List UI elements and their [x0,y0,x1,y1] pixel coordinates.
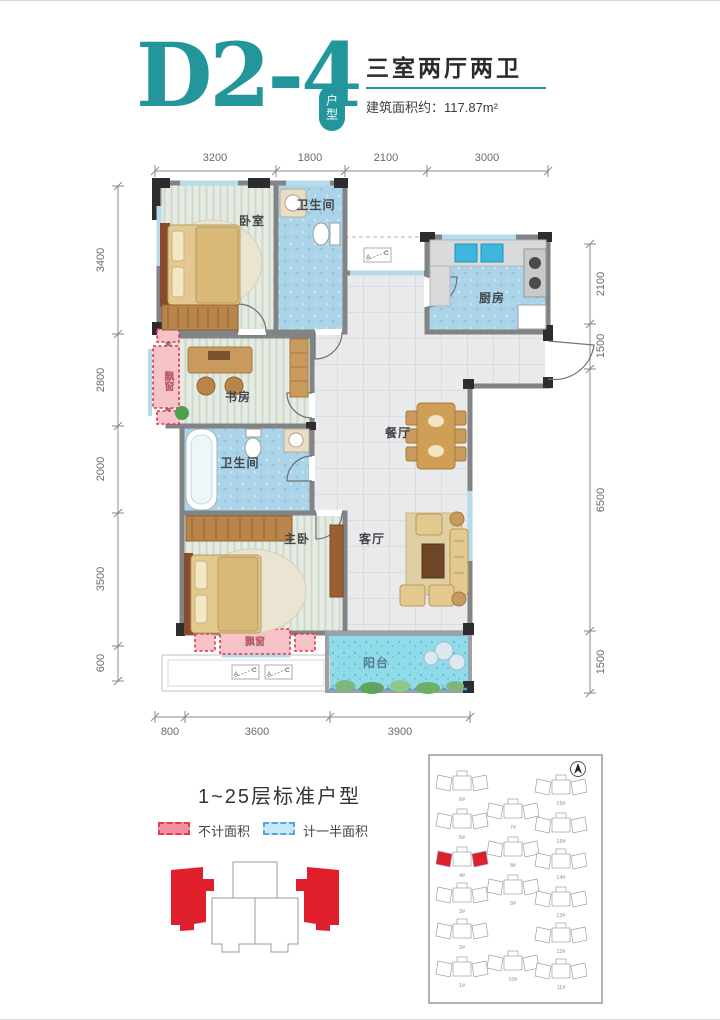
svg-text:3#: 3# [459,909,466,915]
dim-bottom-1: 800 [161,726,179,738]
svg-text:2#: 2# [459,945,466,951]
footprint-unit-highlight-right [296,867,339,931]
dim-left-1: 3400 [95,248,107,272]
unit-type-badge: 户型 [319,85,345,131]
label-living: 客厅 [358,531,385,546]
dim-top-2: 1800 [298,152,322,164]
svg-text:9#: 9# [510,901,517,907]
dim-left-2: 2800 [95,368,107,392]
closet-icon [162,305,238,330]
label-study: 书房 [225,389,251,404]
dim-top-4: 3000 [475,152,499,164]
bay-bottom-label: 飘窗 [245,635,265,648]
dim-bottom-2: 3600 [245,726,269,738]
area-text: 建筑面积约：117.87m² [366,97,498,116]
svg-text:13#: 13# [556,913,566,919]
svg-text:6#: 6# [459,797,466,803]
legend-label-half-counted: 计一半面积 [303,821,368,840]
dim-left-4: 3500 [95,567,107,591]
dim-right-3: 6500 [595,488,607,512]
svg-text:A: A [267,671,272,678]
label-dining: 餐厅 [385,425,411,440]
dim-right-4: 1500 [595,650,607,674]
label-bath-top: 卫生间 [296,197,335,212]
label-bath-mid: 卫生间 [220,455,259,470]
legend-swatch-half-counted [263,822,295,835]
bay-square-left-top [157,329,179,342]
footprint-center-top [233,862,277,898]
svg-text:1#: 1# [459,983,466,989]
dim-top-1: 3200 [203,152,227,164]
section-marker-bottom-1: A C [232,665,259,679]
svg-text:8#: 8# [510,863,517,869]
svg-text:A: A [366,254,371,261]
siteplan-keymap: 6#16#5#7#15#4#8#14#3#9#13#2#12#1#10#11# [428,754,603,1004]
svg-text:C: C [252,667,257,674]
legend-label-not-counted: 不计面积 [198,821,250,840]
footprint-unit-highlight-left [171,867,214,931]
dining-table-icon [406,403,466,469]
svg-text:4#: 4# [459,873,466,879]
svg-text:A: A [234,671,239,678]
svg-text:12#: 12# [556,949,566,955]
floors-note: 1~25层标准户型 [198,780,361,809]
svg-text:14#: 14# [556,875,566,881]
label-kitchen: 厨房 [479,290,505,305]
svg-text:C: C [384,250,389,257]
svg-text:C: C [285,667,290,674]
building-footprint [145,856,405,981]
sofa-icon [400,512,468,606]
svg-text:5#: 5# [459,835,466,841]
bed-icon [160,220,262,307]
bay-square-bottom-right [295,634,315,651]
svg-text:16#: 16# [556,801,566,807]
floorplan-drawing: 3200 1800 2100 3000 3400 2800 2000 3500 … [0,141,720,761]
svg-text:11#: 11# [557,985,567,991]
title-divider [366,87,546,89]
label-balcony: 阳台 [363,655,389,670]
label-bedroom: 卧室 [239,213,265,228]
legend-swatch-not-counted [158,822,190,835]
bay-left-label: 飘窗 [157,355,175,407]
dim-left-3: 2000 [95,457,107,481]
section-marker-bottom-2: A C [265,665,292,679]
floorplan-poster: D2-4 户型 三室两厅两卫 建筑面积约：117.87m² [0,0,720,1020]
dim-left-5: 600 [95,654,107,672]
bay-square-bottom-left [195,634,215,651]
dim-right-1: 2100 [595,272,607,296]
section-marker-top: A C [364,248,391,262]
svg-text:10#: 10# [508,977,518,983]
layout-title: 三室两厅两卫 [366,49,522,83]
north-arrow-icon [571,762,586,777]
label-master: 主卧 [284,531,310,546]
svg-text:7#: 7# [510,825,517,831]
dim-bottom-3: 3900 [388,726,412,738]
dim-top-3: 2100 [374,152,398,164]
svg-text:15#: 15# [556,839,566,845]
entry-door-arc [548,341,594,380]
dim-right-2: 1500 [595,334,607,358]
